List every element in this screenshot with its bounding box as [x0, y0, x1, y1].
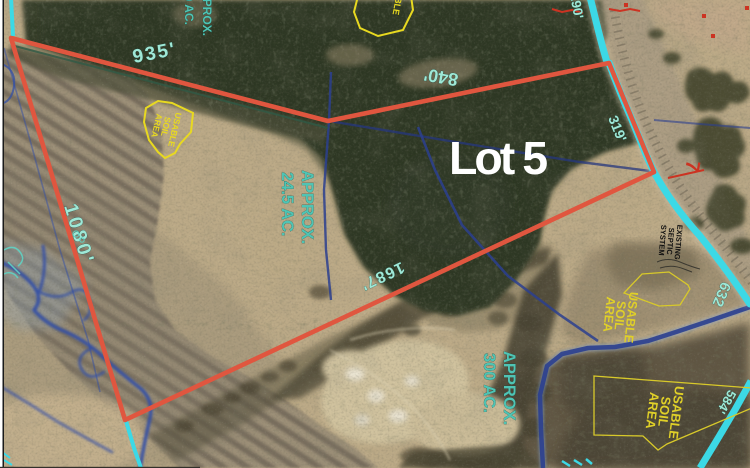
- svg-text:24.5 AC.: 24.5 AC.: [278, 172, 296, 237]
- svg-text:APPROX.: APPROX.: [500, 351, 518, 425]
- svg-text:20 AC.: 20 AC.: [182, 0, 196, 25]
- svg-text:300 AC.: 300 AC.: [480, 353, 498, 413]
- svg-text:APPROX.: APPROX.: [200, 0, 214, 36]
- svg-text:APPROX.: APPROX.: [298, 170, 316, 244]
- svg-text:Lot 5: Lot 5: [449, 132, 547, 184]
